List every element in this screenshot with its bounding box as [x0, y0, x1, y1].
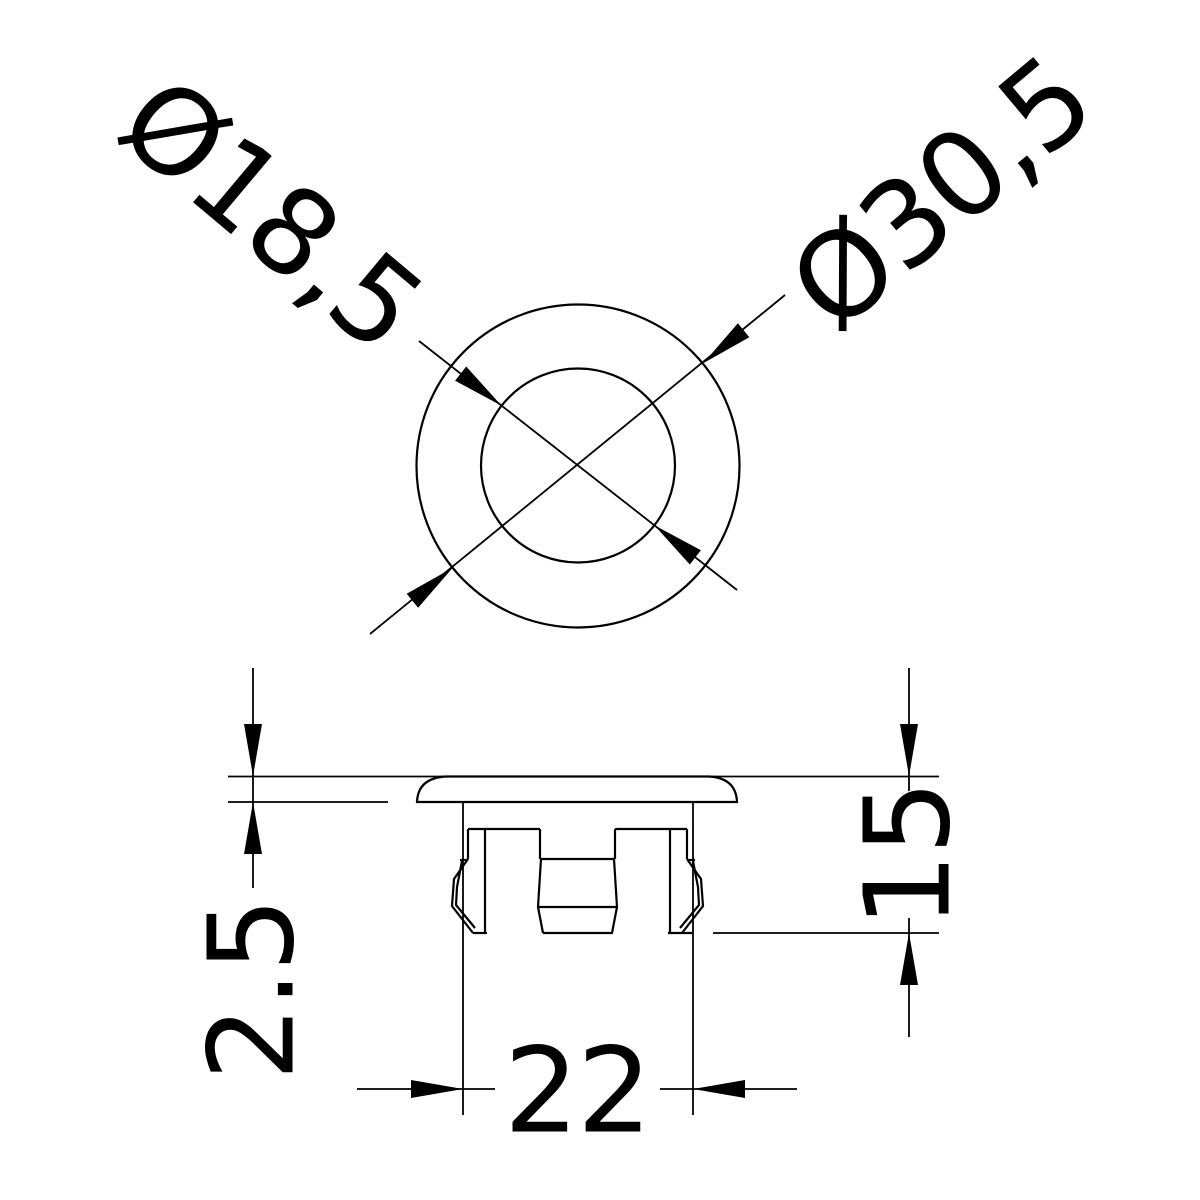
arrowhead-se-icon — [654, 525, 701, 564]
cap-height-label: 2.5 — [182, 899, 320, 1081]
dim-cap-height: 2.5 — [182, 668, 320, 1081]
arrowhead-down-icon — [900, 724, 918, 776]
total-height-label: 15 — [838, 782, 976, 928]
right-snap-leg — [615, 829, 703, 933]
dim-inner-diameter: Ø18,5 — [94, 50, 737, 590]
dim-body-width: 22 — [357, 1021, 797, 1159]
arrowhead-sw-icon — [407, 568, 453, 608]
arrowhead-down-icon — [244, 724, 262, 776]
arrowhead-left-icon — [693, 1080, 745, 1098]
arrowhead-up-icon — [244, 802, 262, 854]
dim-total-height: 15 — [838, 668, 976, 1037]
arrowhead-right-icon — [411, 1080, 463, 1098]
inner-diameter-label: Ø18,5 — [94, 50, 447, 378]
dim-outer-diameter: Ø30,5 — [370, 29, 1118, 634]
outer-diameter-label: Ø30,5 — [764, 29, 1117, 357]
cap-profile — [417, 777, 737, 803]
arrowhead-up-icon — [900, 933, 918, 985]
center-plug-block — [538, 859, 618, 933]
top-view: Ø18,5 Ø30,5 — [94, 29, 1117, 634]
left-snap-leg — [452, 829, 540, 933]
center-block-left-edge — [538, 859, 543, 933]
technical-drawing-canvas: Ø18,5 Ø30,5 — [0, 0, 1200, 1200]
body-width-label: 22 — [504, 1021, 650, 1159]
technical-drawing-page: Ø18,5 Ø30,5 — [0, 0, 1200, 1200]
arrowhead-ne-icon — [703, 323, 749, 363]
center-block-right-edge — [612, 859, 617, 933]
arrowhead-nw-icon — [455, 367, 502, 406]
